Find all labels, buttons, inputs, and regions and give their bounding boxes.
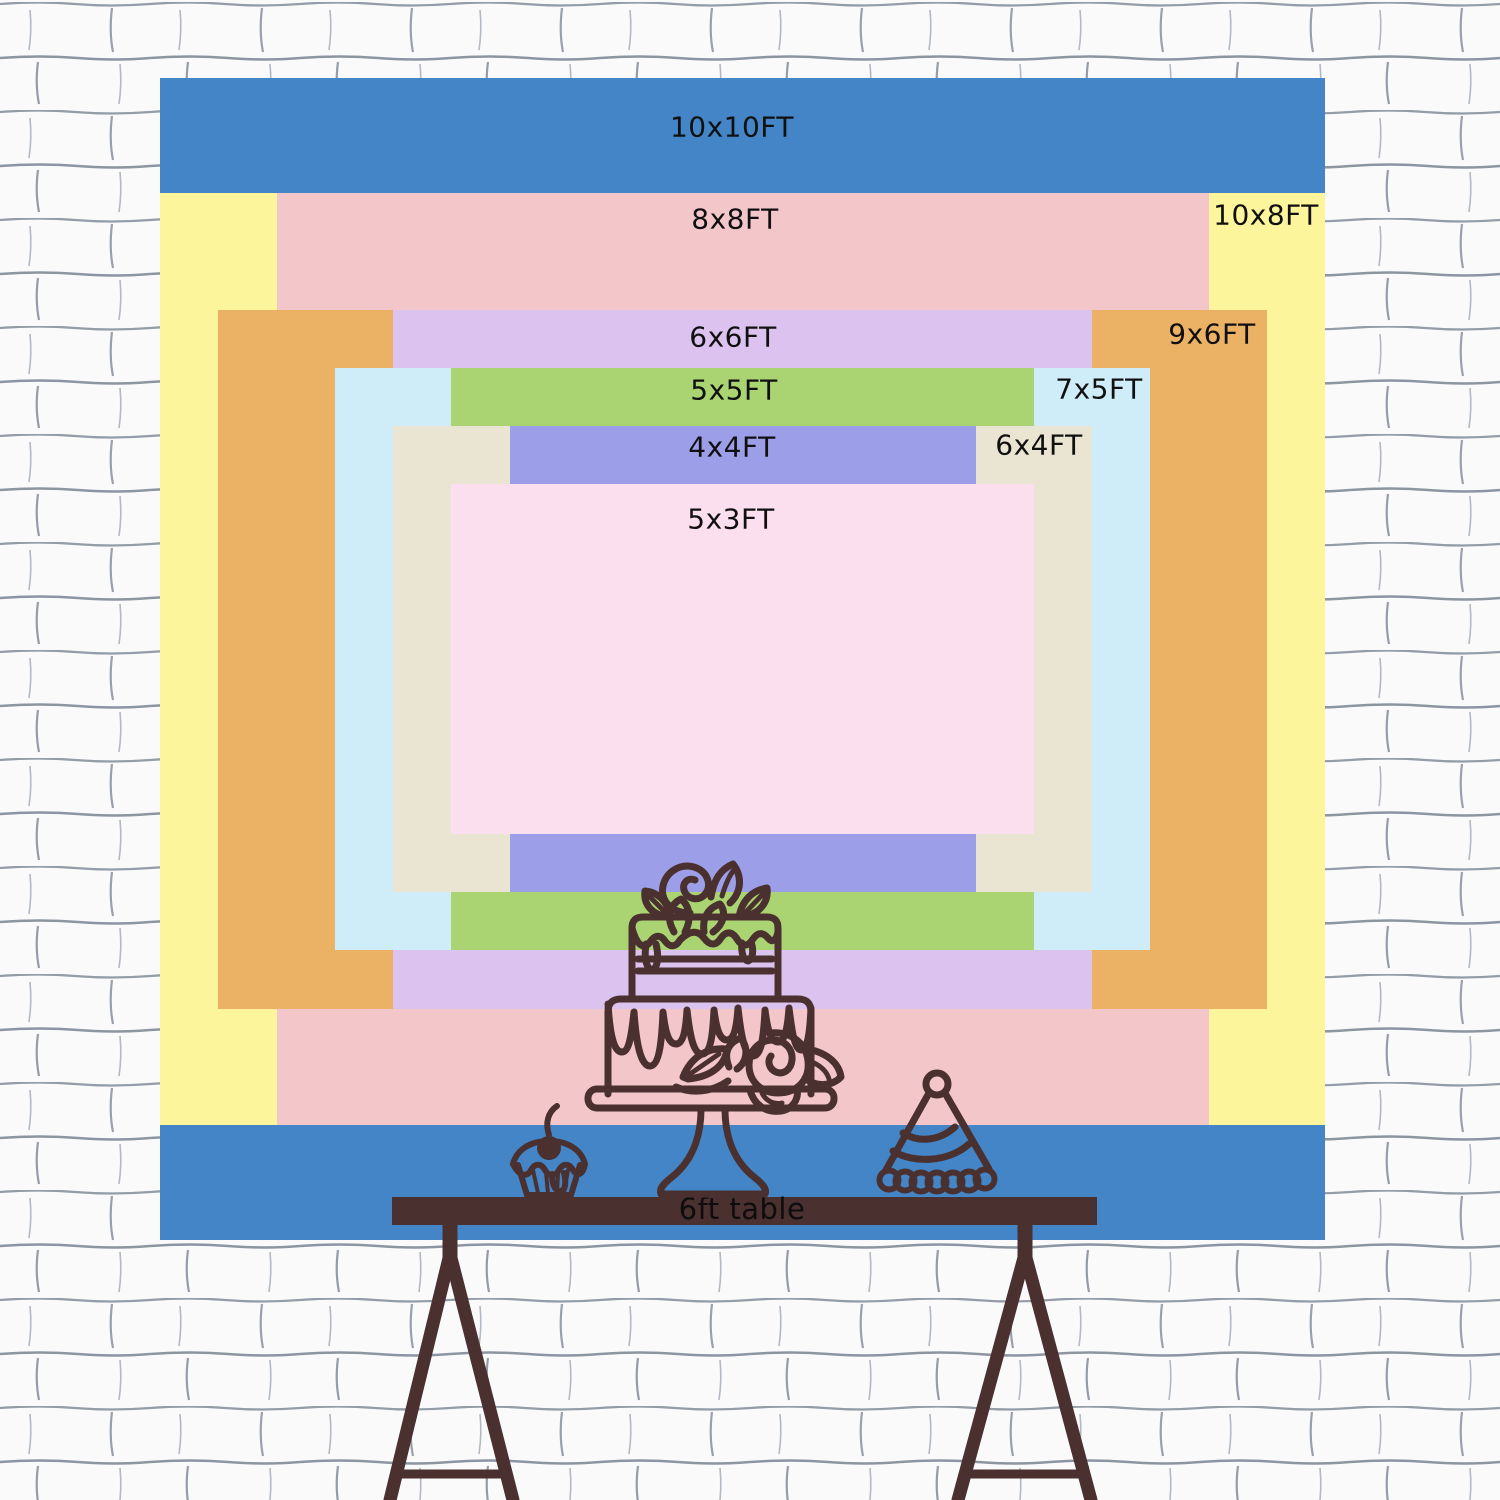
scene: 10x10FT10x8FT8x8FT9x6FT6x6FT7x5FT5x5FT6x… — [0, 0, 1500, 1500]
table-and-decorations: 6ft table — [0, 0, 1500, 1500]
cherry-stem — [547, 1106, 557, 1135]
right-trestle-leg — [958, 1222, 1091, 1500]
left-trestle-leg — [390, 1222, 513, 1500]
cake-flower-cluster — [676, 1033, 841, 1112]
tiered-cake-illustration — [588, 864, 841, 1194]
cake-topper-rose — [645, 864, 768, 932]
cupcake-frosting-rim — [513, 1164, 585, 1175]
hat-scallop-trim — [880, 1170, 995, 1192]
cupcake-illustration — [513, 1106, 585, 1195]
cake-stand-pedestal — [660, 1109, 765, 1194]
party-hat-illustration — [880, 1073, 995, 1192]
trestle-legs — [390, 1222, 1091, 1500]
hat-stripe-2 — [893, 1144, 969, 1159]
